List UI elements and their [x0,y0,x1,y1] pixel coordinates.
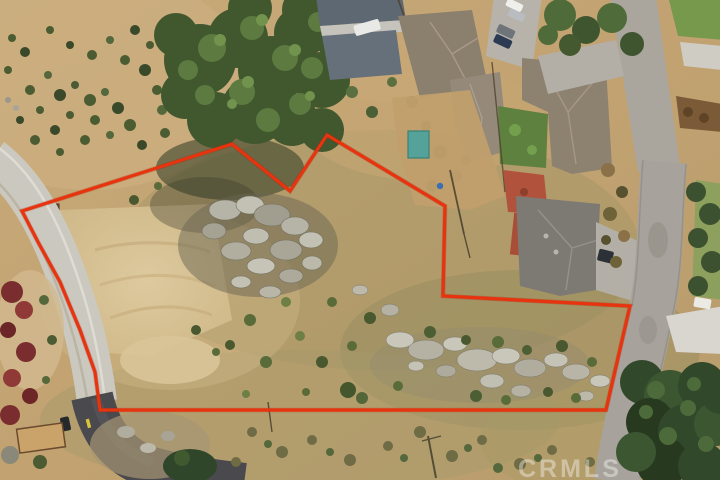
mls-watermark: CRMLS [518,455,622,480]
bottom-right-trees [616,360,720,480]
lawn [498,106,548,168]
aerial-listing-photo: CRMLS [0,0,720,480]
house-gray-lower-roof [516,196,600,296]
blue-bin [437,183,443,189]
aerial-photo-canvas: CRMLS [0,0,720,480]
teal-shed [408,131,429,158]
corner-driveway [680,42,720,70]
